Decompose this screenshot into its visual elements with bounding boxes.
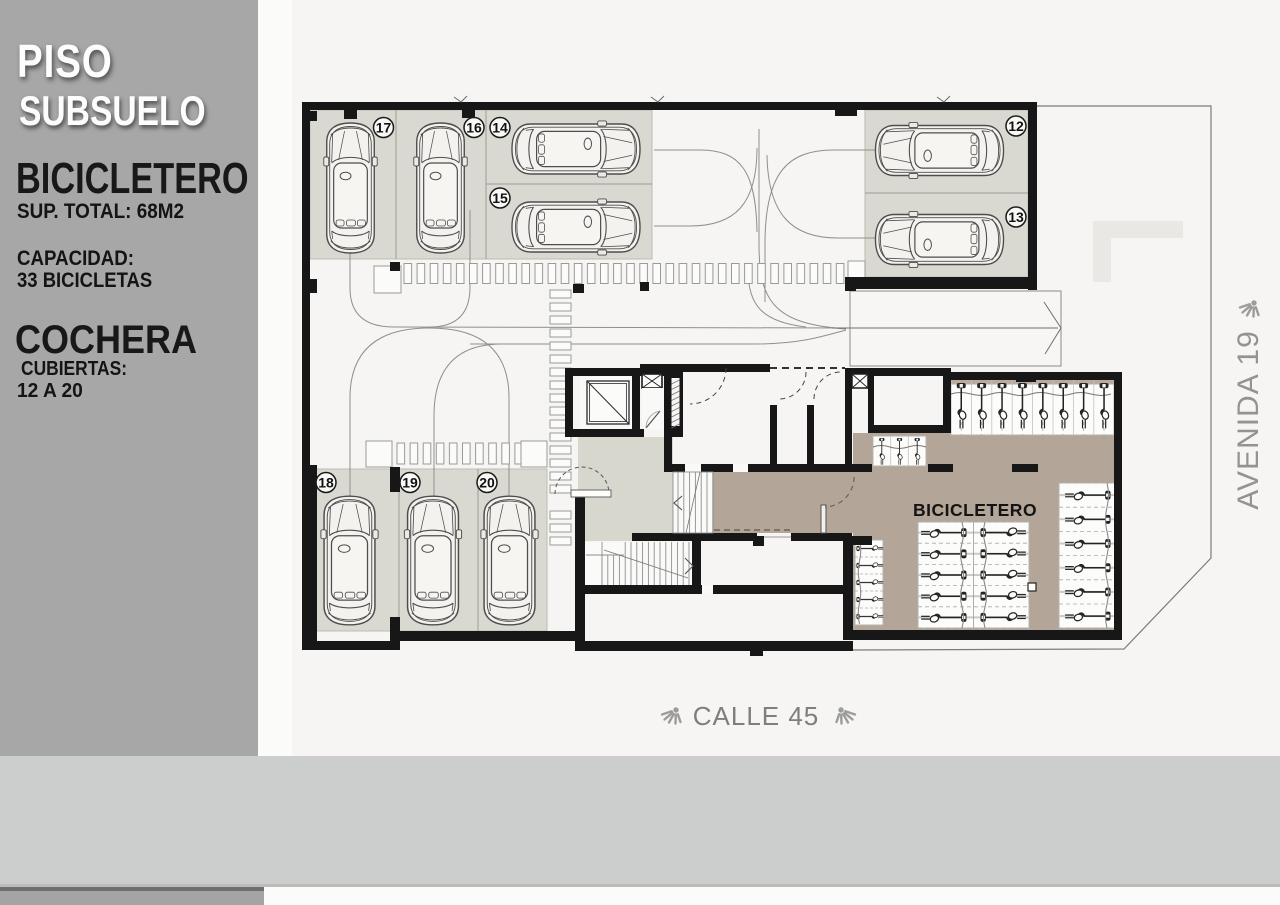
svg-text:17: 17	[376, 120, 392, 136]
svg-text:16: 16	[466, 120, 482, 136]
svg-text:CALLE 45: CALLE 45	[693, 701, 820, 731]
svg-text:12: 12	[1008, 118, 1024, 134]
svg-text:14: 14	[492, 120, 508, 136]
svg-text:BICICLETERO: BICICLETERO	[913, 500, 1037, 520]
svg-text:18: 18	[318, 475, 334, 491]
svg-text:19: 19	[402, 475, 418, 491]
svg-text:13: 13	[1008, 209, 1024, 225]
svg-text:AVENIDA 19: AVENIDA 19	[1232, 330, 1265, 510]
svg-text:15: 15	[492, 190, 508, 206]
svg-text:20: 20	[479, 475, 495, 491]
